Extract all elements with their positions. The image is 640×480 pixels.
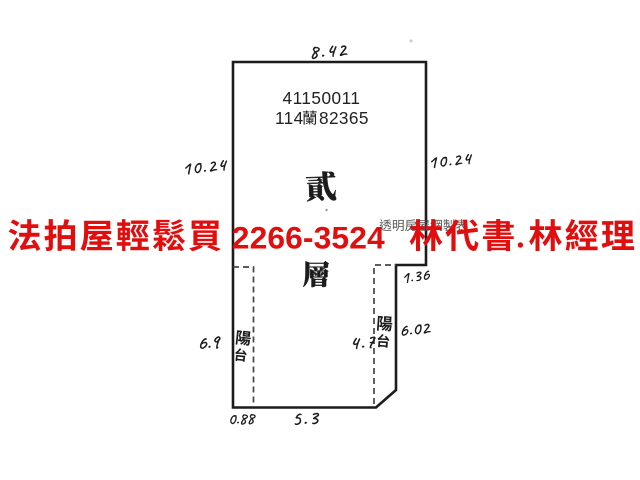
svg-text:2266-3524: 2266-3524 [232, 219, 385, 255]
svg-text:41150011: 41150011 [283, 88, 361, 108]
svg-text:114: 114 [275, 108, 304, 128]
svg-text:82365: 82365 [319, 108, 369, 128]
